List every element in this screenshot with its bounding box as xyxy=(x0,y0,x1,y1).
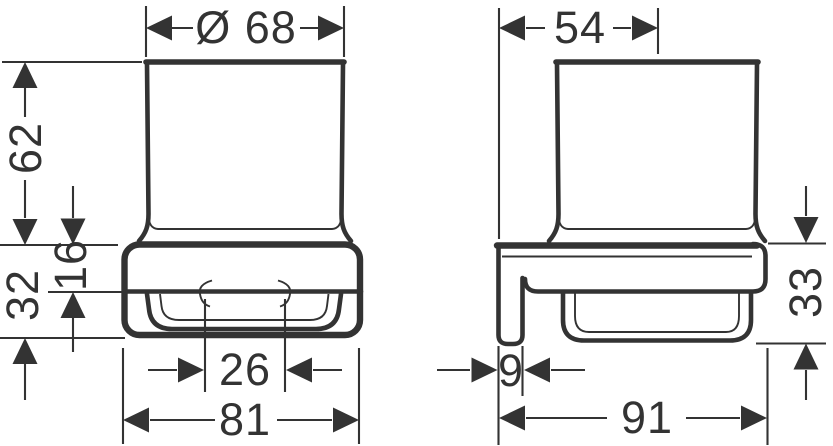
dim-plate-thickness: 9 xyxy=(437,345,585,445)
dim-overall-depth: 91 xyxy=(499,348,768,445)
holder-front xyxy=(125,245,362,336)
glass-side xyxy=(549,62,765,241)
arrowhead-left xyxy=(146,16,172,41)
dim-wall-to-center: 54 xyxy=(499,2,658,239)
dim-label-diameter: Ø 68 xyxy=(195,2,297,53)
glass-bottom-line xyxy=(559,216,756,229)
arrowhead-left xyxy=(286,358,312,383)
dim-label-glass-height: 62 xyxy=(0,122,51,174)
arrowhead-down xyxy=(794,217,819,243)
arrowhead-right xyxy=(632,16,658,41)
dim-collar-height: 16 xyxy=(45,186,122,352)
dim-label-overall-width: 81 xyxy=(219,394,271,445)
shelf-underside-outline xyxy=(525,244,766,292)
dim-label-holder-height: 32 xyxy=(0,269,48,321)
arrowhead-down xyxy=(13,219,38,245)
front-view: Ø 68 62 32 16 xyxy=(0,2,361,445)
dim-inner-width: 26 xyxy=(148,299,342,395)
holder-side xyxy=(497,244,766,344)
dim-glass-height: 62 xyxy=(0,62,142,245)
glass-right-wall xyxy=(342,64,352,241)
dim-label-overall-depth: 91 xyxy=(621,392,673,443)
glass-front xyxy=(139,62,351,241)
arrowhead-right xyxy=(333,408,359,433)
glass-right-wall xyxy=(756,64,766,241)
dim-label-plate-thickness: 9 xyxy=(498,345,524,396)
arrowhead-up xyxy=(61,292,86,318)
arrowhead-right xyxy=(318,16,344,41)
arrowhead-left xyxy=(499,406,525,431)
arrowhead-up xyxy=(794,344,819,370)
glass-bottom-line xyxy=(149,216,342,229)
dim-diameter: Ø 68 xyxy=(146,2,344,57)
dim-label-collar-height: 16 xyxy=(45,239,96,291)
arrowhead-right xyxy=(741,406,767,431)
arrowhead-right xyxy=(472,358,498,383)
wall-plate-outline xyxy=(499,247,523,344)
arrowhead-up xyxy=(13,62,38,88)
arrowhead-left xyxy=(499,16,525,41)
ring-outer xyxy=(563,293,751,341)
ring-inner xyxy=(575,293,739,332)
arrowhead-up xyxy=(13,338,38,364)
arrowhead-left xyxy=(524,358,550,383)
drawing-canvas: Ø 68 62 32 16 xyxy=(0,0,833,446)
holder-ring-outer xyxy=(147,294,341,329)
glass-left-wall xyxy=(549,64,559,241)
dim-label-holder-height-side: 33 xyxy=(780,266,831,318)
dim-label-inner-width: 26 xyxy=(219,344,271,395)
arrowhead-left xyxy=(123,408,149,433)
glass-left-wall xyxy=(139,64,149,241)
dim-label-wall-to-center: 54 xyxy=(554,2,606,53)
side-view: 54 9 91 33 xyxy=(437,2,831,445)
arrowhead-right xyxy=(178,358,204,383)
holder-ring-inner xyxy=(160,294,329,320)
dimension-drawing: Ø 68 62 32 16 xyxy=(0,0,833,446)
